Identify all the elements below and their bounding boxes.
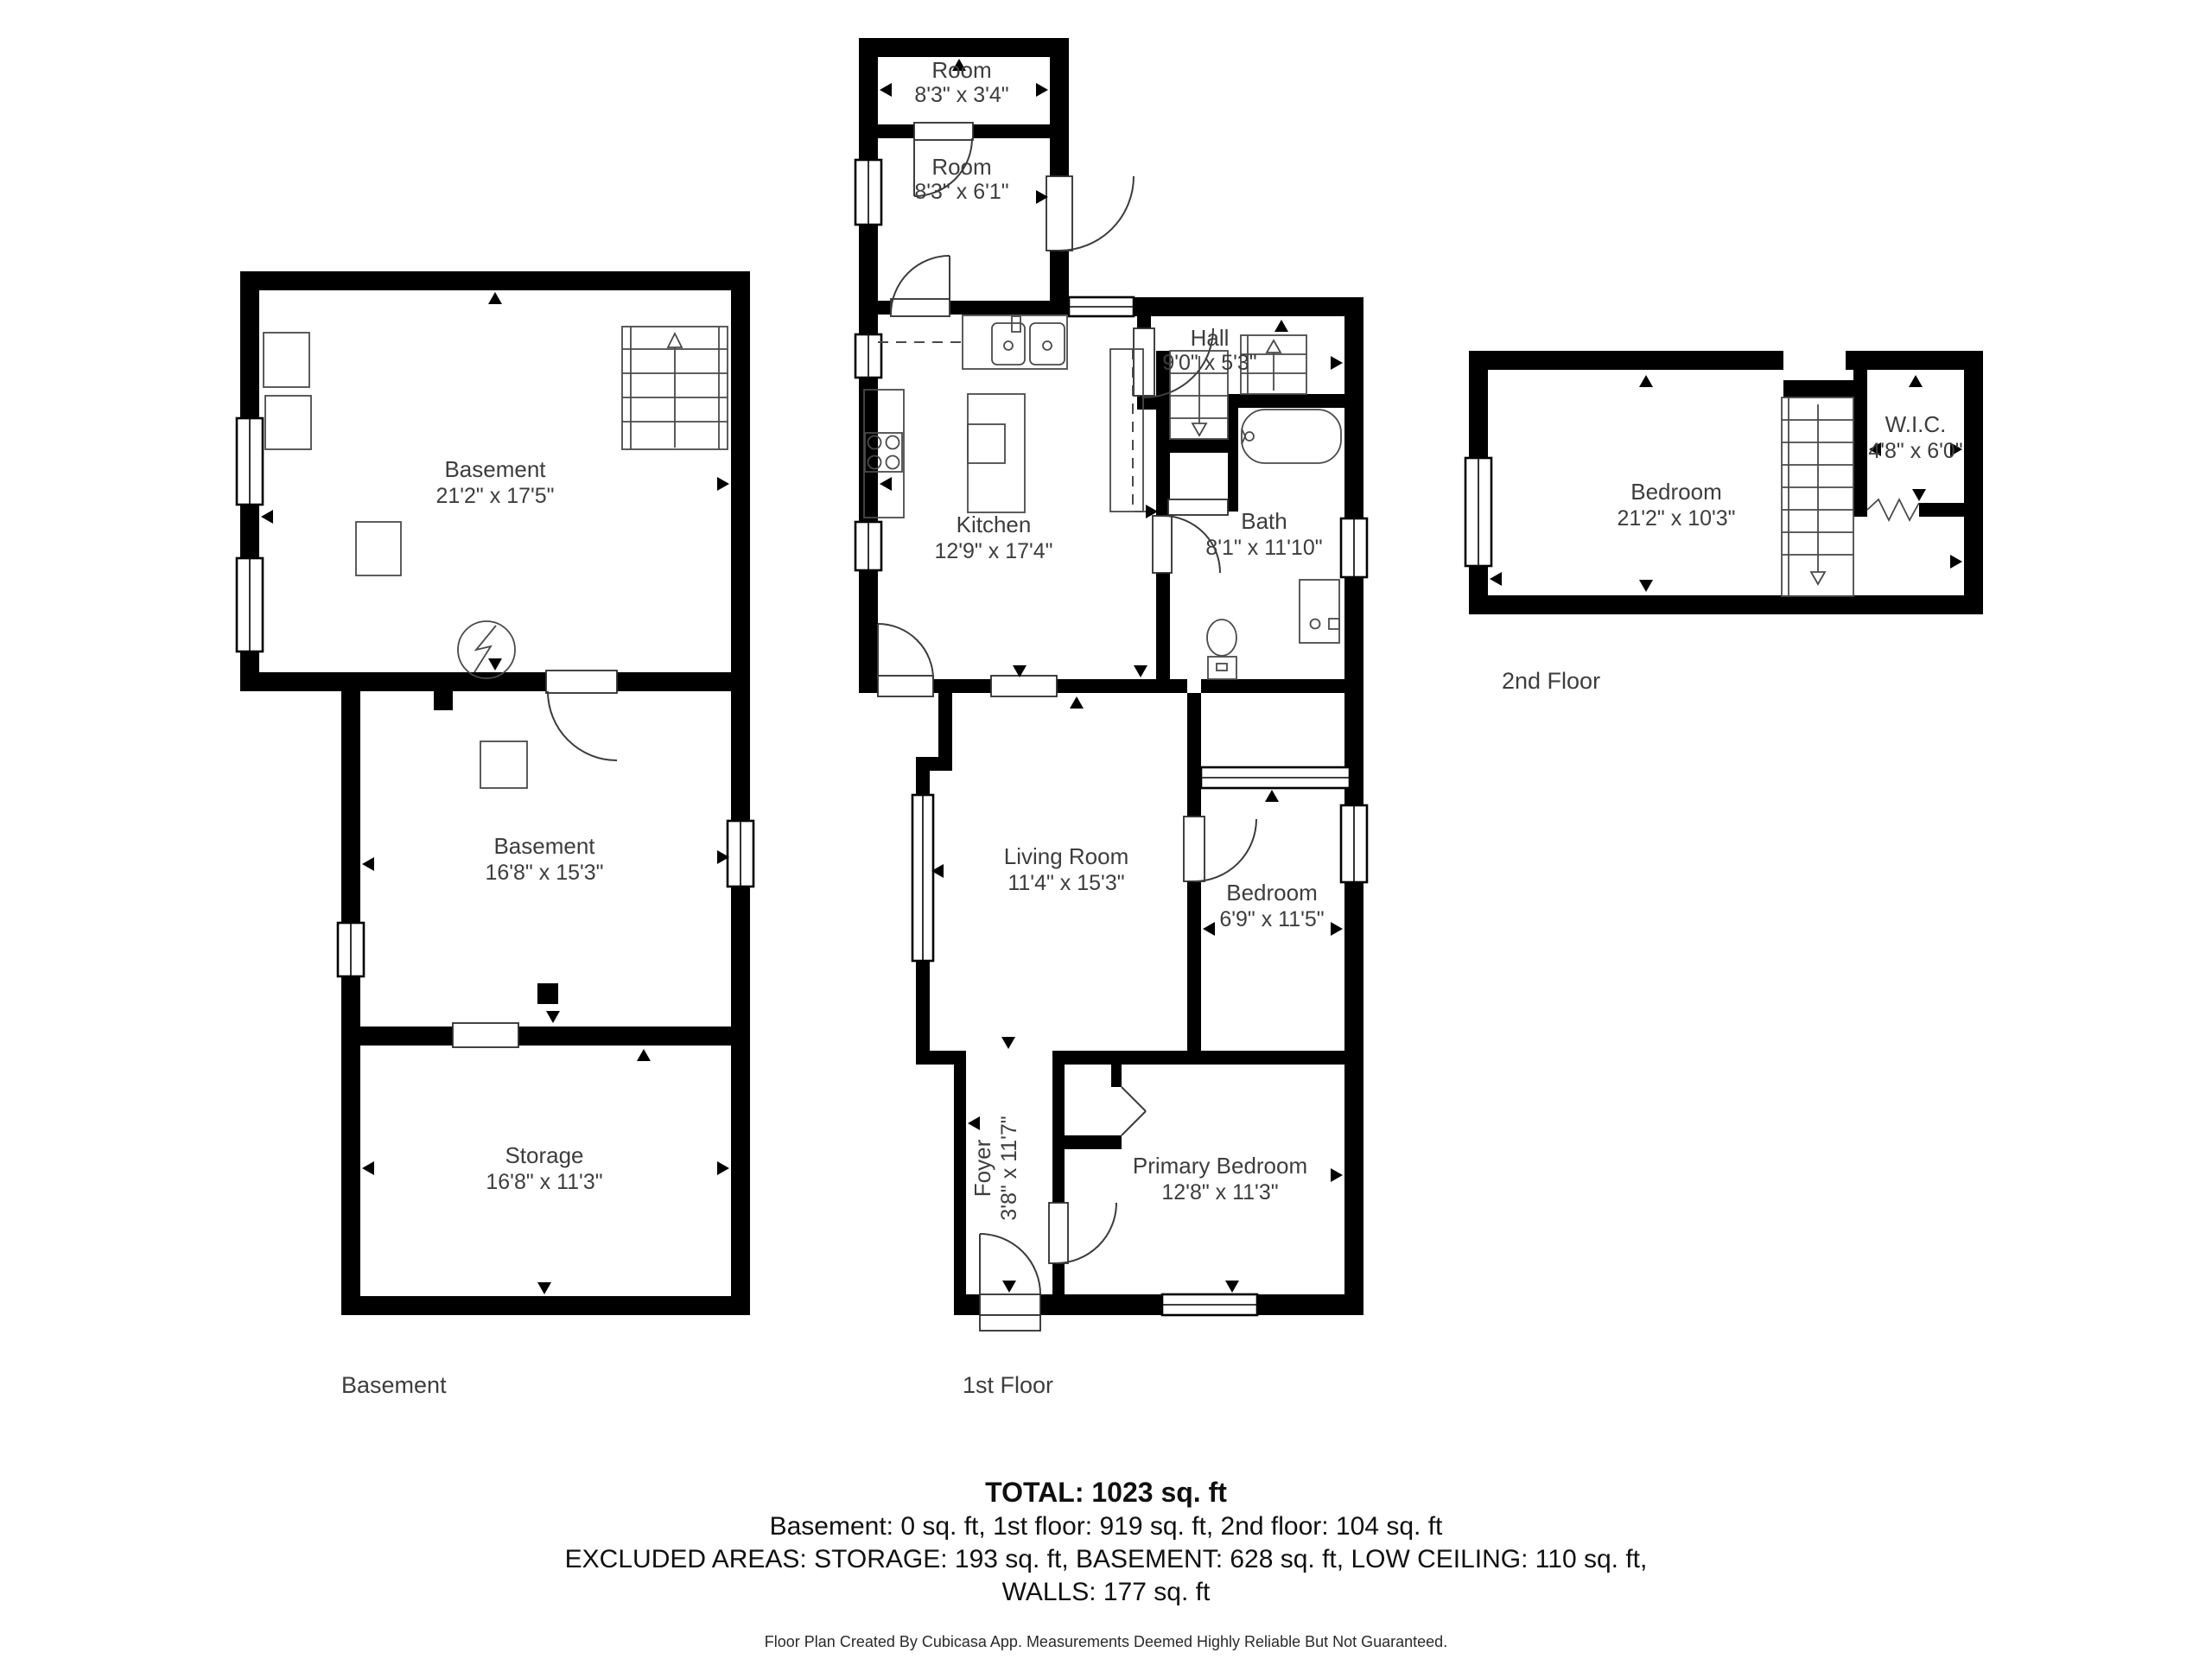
bedroom-label: Bedroom <box>1226 880 1318 906</box>
basement-lower-dims: 16'8" x 15'3" <box>485 861 603 885</box>
first-floor-measure-arrows <box>880 59 1343 1293</box>
water-heater-icon <box>458 621 515 678</box>
bathroom-sink-icon <box>1300 580 1339 643</box>
basement-measure-arrows <box>261 292 729 1294</box>
wic-label: W.I.C. <box>1885 411 1947 437</box>
room-mid-label: Room <box>931 154 991 180</box>
bedroom-dims: 6'9" x 11'5" <box>1219 907 1324 931</box>
second-floor-staircase-icon <box>1782 397 1853 596</box>
second-floor-plan: Bedroom 21'2" x 10'3" W.I.C. 4'8" x 6'0"… <box>1465 351 1983 694</box>
basement-floor-plan: Basement 21'2" x 17'5" Basement 16'8" x … <box>237 271 753 1398</box>
storage-dims: 16'8" x 11'3" <box>486 1170 602 1194</box>
floor-plan-canvas: Basement 21'2" x 17'5" Basement 16'8" x … <box>0 0 2212 1659</box>
room-top-label: Room <box>931 57 991 83</box>
second-floor-measure-arrows <box>1490 375 1962 592</box>
appliance-icon <box>264 333 527 788</box>
kitchen-sink-icon <box>878 315 1067 369</box>
storage-label: Storage <box>505 1142 583 1168</box>
kitchen-island-icon <box>968 394 1025 512</box>
foyer-dims: 3'8" x 11'7" <box>997 1116 1021 1220</box>
wic-dims: 4'8" x 6'0" <box>1868 439 1962 463</box>
toilet-icon <box>1207 620 1236 679</box>
bath-label: Bath <box>1241 508 1287 534</box>
kitchen-dims: 12'9" x 17'4" <box>934 539 1052 563</box>
kitchen-label: Kitchen <box>957 512 1032 537</box>
basement-walls <box>240 271 750 1315</box>
second-bedroom-label: Bedroom <box>1630 479 1722 505</box>
total-area-text: TOTAL: 1023 sq. ft <box>985 1477 1227 1508</box>
floor-plan-drawing: Basement 21'2" x 17'5" Basement 16'8" x … <box>0 0 2212 1659</box>
basement-upper-label: Basement <box>444 456 546 482</box>
basement-lower-label: Basement <box>493 833 595 859</box>
bath-dims: 8'1" x 11'10" <box>1205 536 1322 560</box>
foyer-label: Foyer <box>969 1139 995 1197</box>
disclaimer-text: Floor Plan Created By Cubicasa App. Meas… <box>765 1633 1447 1650</box>
support-post <box>537 983 558 1004</box>
primary-bedroom-label: Primary Bedroom <box>1133 1153 1307 1179</box>
basement-upper-dims: 21'2" x 17'5" <box>435 484 554 508</box>
hall-label: Hall <box>1191 325 1230 351</box>
basement-staircase-icon <box>622 327 728 449</box>
area-summary: TOTAL: 1023 sq. ft Basement: 0 sq. ft, 1… <box>565 1477 1648 1650</box>
second-floor-windows <box>1465 458 1491 566</box>
accordion-door-icon <box>1867 499 1919 520</box>
room-top-dims: 8'3" x 3'4" <box>914 83 1008 107</box>
hall-dims: 9'0" x 5'3" <box>1162 351 1256 375</box>
primary-bedroom-dims: 12'8" x 11'3" <box>1161 1180 1278 1205</box>
living-room-dims: 11'4" x 15'3" <box>1007 871 1124 895</box>
second-bedroom-dims: 21'2" x 10'3" <box>1617 506 1735 531</box>
floor-areas-text: Basement: 0 sq. ft, 1st floor: 919 sq. f… <box>770 1512 1443 1541</box>
first-floor-label: 1st Floor <box>963 1372 1053 1398</box>
second-floor-label: 2nd Floor <box>1502 668 1600 694</box>
room-mid-dims: 8'3" x 6'1" <box>914 180 1008 204</box>
walls-area-text: WALLS: 177 sq. ft <box>1002 1578 1211 1606</box>
first-floor-plan: Room 8'3" x 3'4" Room 8'3" x 6'1" Hall 9… <box>855 38 1367 1398</box>
basement-door <box>546 671 617 760</box>
basement-floor-label: Basement <box>341 1372 447 1398</box>
excluded-areas-text: EXCLUDED AREAS: STORAGE: 193 sq. ft, BAS… <box>565 1545 1648 1573</box>
storage-opening <box>453 1023 518 1047</box>
living-room-label: Living Room <box>1004 843 1129 869</box>
second-floor-walls <box>1469 351 1983 614</box>
bathtub-icon <box>1242 410 1341 463</box>
